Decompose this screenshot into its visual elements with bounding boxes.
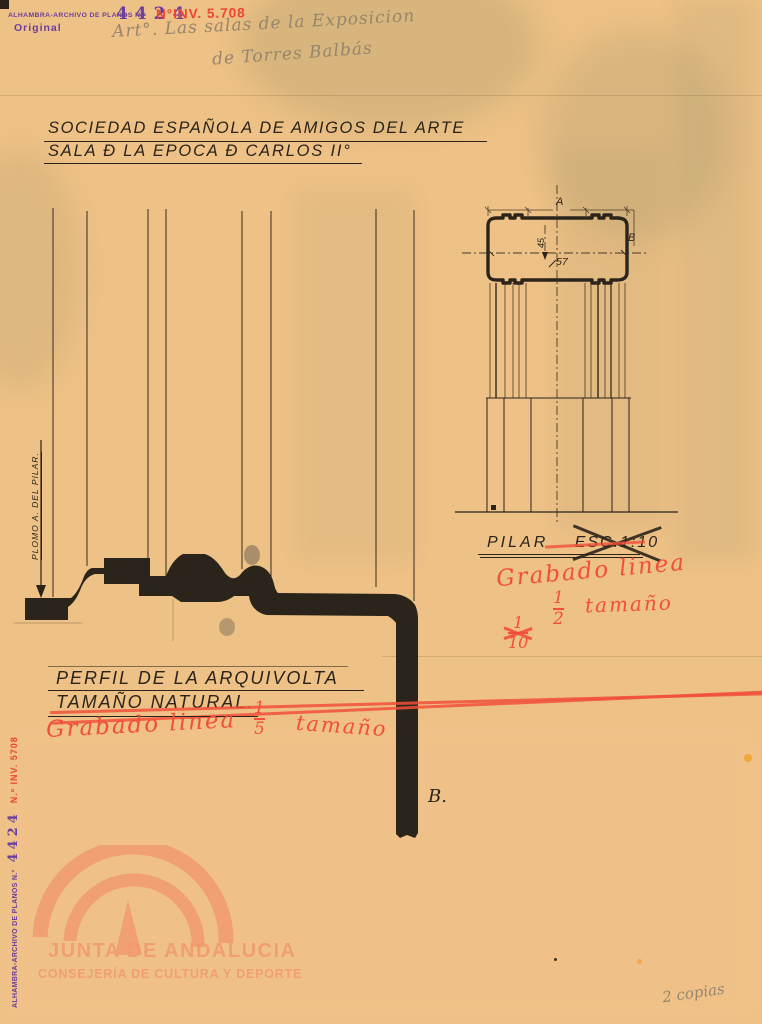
- plan-sheet: ALHAMBRA-ARCHIVO DE PLANOS N.° 4424 Orig…: [0, 0, 762, 1024]
- paper-stain: [540, 30, 730, 240]
- paper-crease: [382, 656, 762, 657]
- paper-stain: [0, 150, 80, 390]
- side-archive-stamp: ALHAMBRA-ARCHIVO DE PLANOS N.° 4424 N.º …: [6, 736, 21, 1008]
- fraction-denominator: 10: [508, 635, 528, 651]
- pilar-struck-fraction: 1 10: [508, 615, 528, 651]
- paper-stain: [675, 0, 755, 560]
- paper-stain: [295, 190, 415, 560]
- pilar-dim-a: A: [556, 196, 563, 208]
- fraction-denominator: 2: [553, 611, 564, 628]
- ink-speck: [554, 958, 557, 961]
- profile-point-label: B.: [428, 786, 447, 807]
- pencil-note-line2: de Torres Balbás: [211, 38, 373, 69]
- pilar-caption: PILAR ESC.1:10: [487, 534, 659, 552]
- pilar-dim-horizontal: 57: [556, 256, 568, 268]
- fraction-denominator: 5: [254, 721, 265, 738]
- guide-rule: [48, 666, 348, 667]
- pilar-red-fraction: 1 2: [553, 590, 564, 628]
- junta-title: JUNTA DE ANDALUCIA: [48, 940, 296, 963]
- pilar-plan-drawing: [450, 168, 690, 528]
- arquivolta-profile-drawing: [0, 195, 450, 845]
- fraction-numerator: 1: [254, 700, 265, 717]
- copies-note: 2 copias: [661, 980, 726, 1007]
- pilar-dim-b: B: [628, 232, 635, 244]
- pilar-scale-label: ESC.1:10: [575, 534, 659, 551]
- paper-stain: [555, 150, 665, 530]
- side-stamp-inventory: N.º INV. 5708: [9, 736, 19, 803]
- perfil-caption-line1: PERFIL DE LA ARQUIVOLTA: [56, 668, 339, 689]
- ink-speck: [637, 959, 642, 964]
- sheet-title-line2: SALA Đ LA EPOCA Đ CARLOS II°: [48, 142, 352, 161]
- perfil-red-note-tail: tamaño: [295, 711, 388, 741]
- pilar-dim-vertical: 45: [536, 238, 546, 248]
- title-underline: [44, 163, 362, 164]
- corner-mark: [0, 0, 9, 9]
- paper-crease: [0, 95, 762, 96]
- perfil-red-fraction: 1 5: [254, 700, 265, 738]
- original-stamp: Original: [14, 22, 62, 34]
- plumb-label: PLOMO A. DEL PILAR.: [30, 452, 42, 560]
- sheet-title-line1: SOCIEDAD ESPAÑOLA DE AMIGOS DEL ARTE: [48, 119, 465, 138]
- fraction-numerator: 1: [513, 615, 523, 631]
- pilar-caption-text: PILAR: [487, 534, 548, 551]
- ink-speck: [744, 754, 752, 762]
- pilar-red-note-tail: tamaño: [585, 590, 674, 617]
- side-stamp-number: 4424: [6, 810, 21, 862]
- junta-subtitle: CONSEJERÍA DE CULTURA Y DEPORTE: [38, 967, 302, 981]
- fraction-numerator: 1: [553, 590, 564, 607]
- side-stamp-label: ALHAMBRA-ARCHIVO DE PLANOS N.°: [12, 869, 19, 1008]
